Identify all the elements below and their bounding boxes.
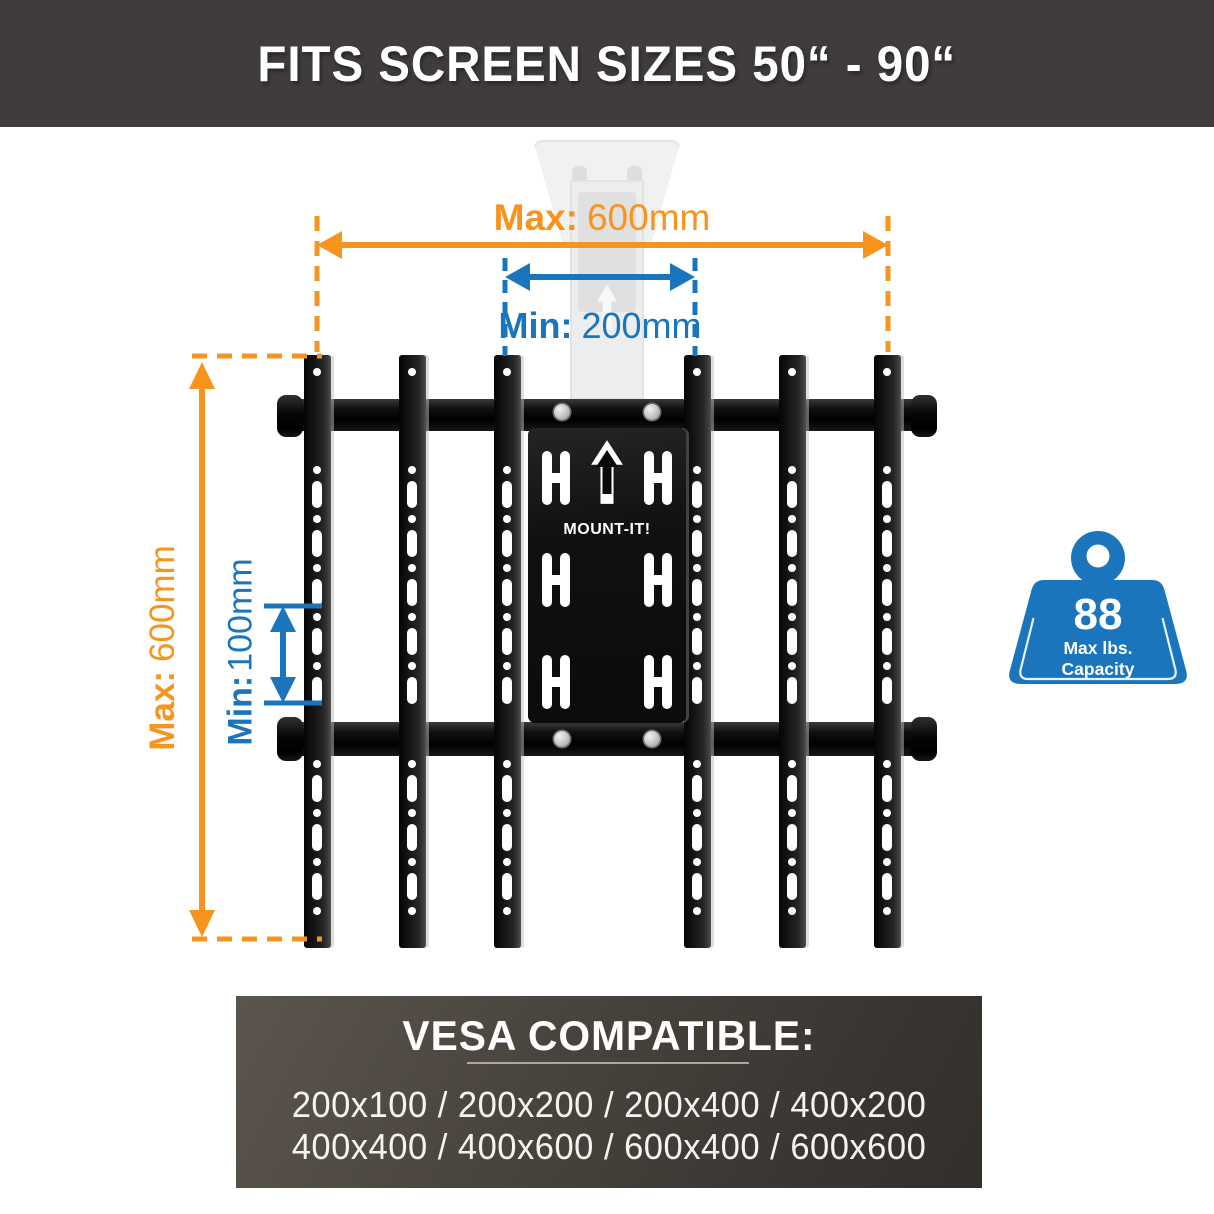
rail-hole bbox=[788, 564, 796, 572]
rail-slot bbox=[882, 775, 892, 802]
plate-cutouts bbox=[528, 428, 686, 723]
mount-rail bbox=[304, 355, 331, 948]
rail-slot bbox=[787, 873, 797, 900]
rail-slot bbox=[882, 873, 892, 900]
rail-hole bbox=[503, 907, 511, 915]
rail-hole bbox=[503, 613, 511, 621]
rail-hole bbox=[788, 515, 796, 523]
rail-slot bbox=[502, 481, 512, 508]
product-infographic: FITS SCREEN SIZES 50“ - 90“ MOUNT-IT! bbox=[0, 0, 1214, 1214]
rail-slot bbox=[787, 579, 797, 606]
banner-title: FITS SCREEN SIZES 50“ - 90“ bbox=[258, 35, 957, 93]
rail-hole bbox=[408, 613, 416, 621]
rail-hole bbox=[788, 466, 796, 474]
label-max-height-key: Max: bbox=[143, 671, 182, 751]
rail-slot bbox=[787, 530, 797, 557]
label-max-height: Max:600mm bbox=[143, 545, 183, 750]
top-crossbar bbox=[290, 399, 924, 431]
rail-slot bbox=[407, 824, 417, 851]
rail-slot bbox=[312, 481, 322, 508]
vesa-sizes-row2: 400x400 / 400x600 / 600x400 / 600x600 bbox=[251, 1126, 967, 1168]
rail-slot bbox=[692, 530, 702, 557]
rail-slot bbox=[312, 775, 322, 802]
screw-icon bbox=[644, 404, 660, 420]
plate-h-slot bbox=[644, 575, 672, 585]
crossbar-end-cap bbox=[911, 717, 937, 761]
rail-slot bbox=[407, 873, 417, 900]
rail-hole bbox=[788, 907, 796, 915]
rail-hole bbox=[503, 662, 511, 670]
vesa-panel: VESA COMPATIBLE: 200x100 / 200x200 / 200… bbox=[236, 996, 982, 1188]
mount-rail bbox=[494, 355, 521, 948]
rail-hole bbox=[313, 466, 321, 474]
label-min-height-key: Min: bbox=[222, 676, 260, 746]
weight-capacity-icon: 88 Max lbs. Capacity bbox=[990, 528, 1206, 694]
label-max-width-value: 600mm bbox=[587, 197, 710, 238]
screw-icon bbox=[554, 404, 570, 420]
label-min-width-value: 200mm bbox=[581, 305, 701, 346]
rail-hole bbox=[693, 564, 701, 572]
rail-hole bbox=[693, 760, 701, 768]
rail-hole bbox=[883, 760, 891, 768]
crossbar-end-cap bbox=[277, 395, 303, 437]
rail-slot bbox=[692, 628, 702, 655]
center-adapter-plate: MOUNT-IT! bbox=[528, 428, 686, 723]
vesa-sizes-row1: 200x100 / 200x200 / 200x400 / 400x200 bbox=[251, 1084, 967, 1126]
rail-hole bbox=[313, 515, 321, 523]
rail-slot bbox=[502, 579, 512, 606]
rail-hole bbox=[883, 662, 891, 670]
rail-hole bbox=[408, 760, 416, 768]
mount-rail bbox=[779, 355, 806, 948]
plate-h-slot bbox=[542, 473, 570, 483]
plate-h-slot bbox=[644, 677, 672, 687]
rail-slot bbox=[882, 824, 892, 851]
rail-hole bbox=[313, 368, 321, 376]
rail-hole bbox=[313, 662, 321, 670]
rail-hole bbox=[883, 613, 891, 621]
rail-slot bbox=[502, 677, 512, 704]
label-max-width-key: Max: bbox=[494, 197, 578, 238]
rail-hole bbox=[788, 858, 796, 866]
mount-rail bbox=[399, 355, 426, 948]
rail-hole bbox=[408, 466, 416, 474]
rail-hole bbox=[693, 662, 701, 670]
rail-hole bbox=[693, 466, 701, 474]
rail-hole bbox=[503, 515, 511, 523]
rail-hole bbox=[503, 368, 511, 376]
rail-slot bbox=[502, 824, 512, 851]
rail-hole bbox=[693, 613, 701, 621]
vesa-title: VESA COMPATIBLE: bbox=[247, 1012, 971, 1060]
rail-slot bbox=[312, 530, 322, 557]
rail-hole bbox=[788, 662, 796, 670]
label-min-height-value: 100mm bbox=[222, 558, 260, 671]
plate-h-slot bbox=[542, 575, 570, 585]
rail-hole bbox=[788, 368, 796, 376]
rail-slot bbox=[787, 824, 797, 851]
rail-hole bbox=[883, 515, 891, 523]
rail-hole bbox=[503, 564, 511, 572]
rail-slot bbox=[692, 824, 702, 851]
rail-slot bbox=[502, 873, 512, 900]
mount-rail bbox=[874, 355, 901, 948]
rail-hole bbox=[693, 858, 701, 866]
brand-logo: MOUNT-IT! bbox=[528, 521, 686, 539]
rail-slot bbox=[407, 579, 417, 606]
rail-hole bbox=[313, 613, 321, 621]
rail-hole bbox=[313, 564, 321, 572]
rail-slot bbox=[407, 481, 417, 508]
rail-hole bbox=[408, 907, 416, 915]
rail-slot bbox=[882, 628, 892, 655]
rail-slot bbox=[692, 481, 702, 508]
rail-slot bbox=[882, 481, 892, 508]
screw-icon bbox=[644, 731, 660, 747]
rail-slot bbox=[787, 775, 797, 802]
rail-hole bbox=[883, 809, 891, 817]
rail-hole bbox=[503, 858, 511, 866]
rail-hole bbox=[883, 858, 891, 866]
rail-hole bbox=[408, 564, 416, 572]
rail-slot bbox=[882, 530, 892, 557]
rail-hole bbox=[788, 809, 796, 817]
rail-slot bbox=[787, 677, 797, 704]
rail-hole bbox=[883, 564, 891, 572]
rail-slot bbox=[692, 775, 702, 802]
rail-hole bbox=[408, 368, 416, 376]
rail-hole bbox=[313, 858, 321, 866]
rail-hole bbox=[313, 760, 321, 768]
label-min-width-key: Min: bbox=[498, 305, 572, 346]
rail-hole bbox=[693, 907, 701, 915]
rail-hole bbox=[503, 466, 511, 474]
rail-slot bbox=[407, 530, 417, 557]
rail-hole bbox=[693, 515, 701, 523]
rail-hole bbox=[313, 907, 321, 915]
plate-h-slot bbox=[644, 473, 672, 483]
title-banner: FITS SCREEN SIZES 50“ - 90“ bbox=[0, 0, 1214, 127]
rail-slot bbox=[787, 481, 797, 508]
rail-slot bbox=[312, 628, 322, 655]
rail-slot bbox=[502, 775, 512, 802]
label-max-width: Max:600mm bbox=[494, 197, 711, 239]
rail-slot bbox=[882, 677, 892, 704]
rail-slot bbox=[502, 628, 512, 655]
mount-rail bbox=[684, 355, 711, 948]
rail-hole bbox=[693, 809, 701, 817]
rail-hole bbox=[408, 858, 416, 866]
capacity-value: 88 bbox=[1074, 590, 1123, 639]
rail-slot bbox=[882, 579, 892, 606]
label-max-height-value: 600mm bbox=[143, 545, 182, 662]
crossbar-end-cap bbox=[911, 395, 937, 437]
rail-hole bbox=[313, 809, 321, 817]
rail-hole bbox=[503, 760, 511, 768]
rail-slot bbox=[312, 873, 322, 900]
rail-slot bbox=[692, 579, 702, 606]
bottom-crossbar bbox=[290, 722, 924, 756]
rail-slot bbox=[312, 824, 322, 851]
rail-slot bbox=[502, 530, 512, 557]
rail-hole bbox=[883, 368, 891, 376]
rail-slot bbox=[407, 628, 417, 655]
rail-slot bbox=[312, 677, 322, 704]
plate-h-slot bbox=[542, 677, 570, 687]
crossbar-end-cap bbox=[277, 717, 303, 761]
capacity-unit-line2: Capacity bbox=[1062, 659, 1135, 679]
rail-hole bbox=[503, 809, 511, 817]
capacity-unit-line1: Max lbs. bbox=[1063, 638, 1132, 658]
label-min-width: Min:200mm bbox=[498, 305, 701, 347]
rail-slot bbox=[692, 677, 702, 704]
rail-hole bbox=[883, 907, 891, 915]
vesa-title-underline bbox=[467, 1062, 749, 1064]
weight-handle-hole bbox=[1087, 545, 1110, 568]
rail-hole bbox=[408, 662, 416, 670]
label-min-height: Min:100mm bbox=[222, 558, 261, 745]
rail-hole bbox=[883, 466, 891, 474]
rail-slot bbox=[407, 775, 417, 802]
rail-slot bbox=[407, 677, 417, 704]
rail-hole bbox=[408, 809, 416, 817]
rail-hole bbox=[788, 613, 796, 621]
rail-slot bbox=[787, 628, 797, 655]
screw-icon bbox=[554, 731, 570, 747]
rail-slot bbox=[692, 873, 702, 900]
rail-hole bbox=[408, 515, 416, 523]
rail-slot bbox=[312, 579, 322, 606]
rail-hole bbox=[693, 368, 701, 376]
rail-hole bbox=[788, 760, 796, 768]
